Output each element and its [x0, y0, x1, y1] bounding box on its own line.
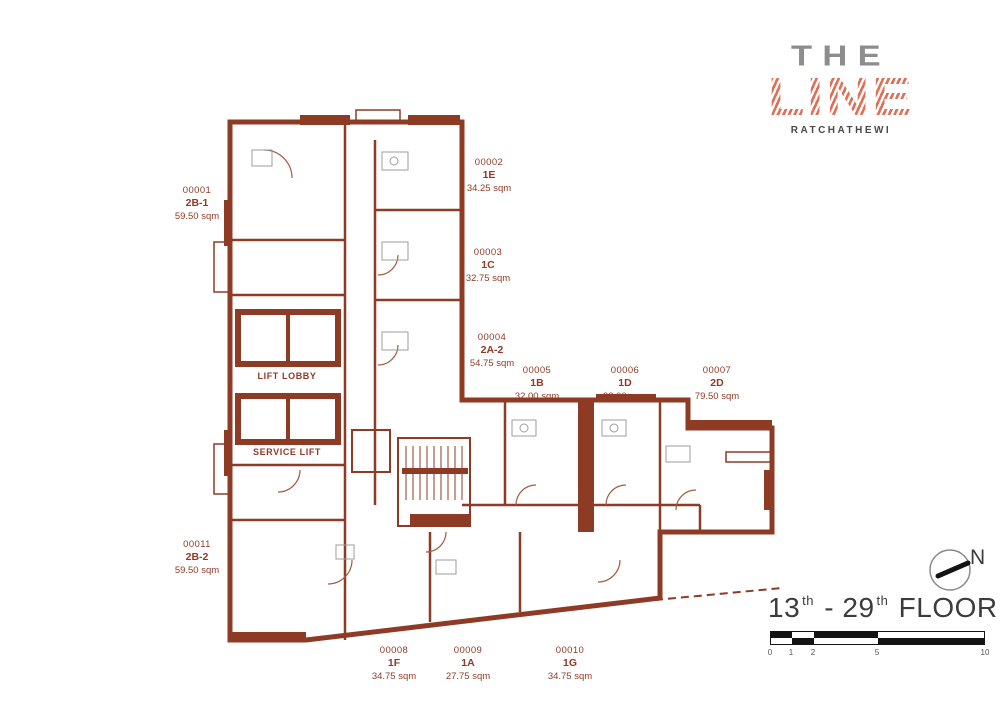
unit-number: 00006 [603, 364, 647, 377]
unit-number: 00011 [175, 538, 219, 551]
service-lift-label: SERVICE LIFT [253, 447, 321, 457]
unit-number: 00009 [446, 644, 490, 657]
unit-label: 00004 2A-2 54.75 sqm [470, 331, 514, 370]
north-arrow: N [926, 544, 998, 598]
unit-number: 00003 [466, 246, 510, 259]
unit-area: 59.50 sqm [175, 210, 219, 223]
unit-label: 00001 2B-1 59.50 sqm [175, 184, 219, 223]
scale-tick: 2 [811, 648, 815, 657]
scale-bar-row [771, 638, 984, 644]
unit-number: 00010 [548, 644, 592, 657]
unit-number: 00008 [372, 644, 416, 657]
unit-type: 1B [515, 377, 559, 390]
unit-label: 00005 1B 32.00 sqm [515, 364, 559, 403]
stair-core [352, 430, 470, 526]
scale-tick: 5 [875, 648, 879, 657]
scale-bar [770, 631, 985, 645]
unit-area: 79.50 sqm [695, 390, 739, 403]
scale-tick: 0 [768, 648, 772, 657]
scale-tick: 1 [789, 648, 793, 657]
unit-area: 34.75 sqm [372, 670, 416, 683]
floor-plan-page: 00001 2B-1 59.50 sqm 00002 1E 34.25 sqm … [0, 0, 1000, 704]
unit-area: 34.25 sqm [467, 182, 511, 195]
unit-label: 00010 1G 34.75 sqm [548, 644, 592, 683]
unit-type: 1E [467, 169, 511, 182]
boundary-dashed-line [655, 588, 782, 600]
unit-label: 00007 2D 79.50 sqm [695, 364, 739, 403]
unit-type: 2B-1 [175, 197, 219, 210]
floor-separator: - [824, 592, 834, 623]
unit-type: 1A [446, 657, 490, 670]
unit-type: 2D [695, 377, 739, 390]
unit-label: 00006 1D 33.00 sqm [603, 364, 647, 403]
unit-type: 1G [548, 657, 592, 670]
unit-area: 32.75 sqm [466, 272, 510, 285]
building-outline [230, 122, 772, 640]
unit-area: 34.75 sqm [548, 670, 592, 683]
floor-from: 13 [768, 592, 800, 623]
unit-type: 2B-2 [175, 551, 219, 564]
floor-to-ordinal: th [877, 593, 889, 608]
unit-area: 33.00 sqm [603, 390, 647, 403]
unit-area: 27.75 sqm [446, 670, 490, 683]
floor-to: 29 [842, 592, 874, 623]
floor-plan-title: 13th - 29th FLOOR PLAN [768, 592, 1000, 624]
unit-area: 59.50 sqm [175, 564, 219, 577]
floor-from-ordinal: th [802, 593, 814, 608]
unit-label: 00002 1E 34.25 sqm [467, 156, 511, 195]
unit-type: 1C [466, 259, 510, 272]
north-label: N [970, 546, 985, 570]
unit-label: 00003 1C 32.75 sqm [466, 246, 510, 285]
unit-number: 00004 [470, 331, 514, 344]
unit-number: 00007 [695, 364, 739, 377]
unit-type: 1D [603, 377, 647, 390]
unit-area: 32.00 sqm [515, 390, 559, 403]
unit-type: 1F [372, 657, 416, 670]
unit-label: 00011 2B-2 59.50 sqm [175, 538, 219, 577]
north-arrow-icon [926, 544, 976, 594]
logo-line-text: LINE [746, 72, 936, 122]
unit-type: 2A-2 [470, 344, 514, 357]
unit-label: 00009 1A 27.75 sqm [446, 644, 490, 683]
scale-tick: 10 [981, 648, 990, 657]
project-logo: THE LINE RATCHATHEWI [756, 42, 926, 136]
unit-number: 00002 [467, 156, 511, 169]
unit-label: 00008 1F 34.75 sqm [372, 644, 416, 683]
lift-lobby-label: LIFT LOBBY [258, 371, 317, 381]
unit-area: 54.75 sqm [470, 357, 514, 370]
unit-number: 00001 [175, 184, 219, 197]
unit-number: 00005 [515, 364, 559, 377]
floor-title-text: FLOOR PLAN [899, 592, 1000, 623]
